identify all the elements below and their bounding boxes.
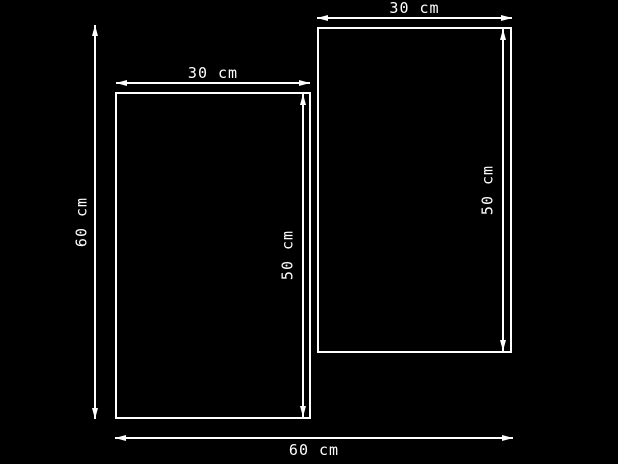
arrowhead-down-icon bbox=[92, 408, 98, 419]
dim-label-left-panel-height-text: 50 cm bbox=[281, 230, 296, 280]
dimension-line bbox=[94, 25, 96, 419]
dimension-line bbox=[302, 94, 304, 417]
arrowhead-up-icon bbox=[500, 29, 506, 40]
dim-label-overall-height-text: 60 cm bbox=[75, 197, 90, 247]
technical-drawing-canvas: 30 cm 30 cm 60 cm 50 cm 50 cm bbox=[0, 0, 618, 464]
dim-label-right-panel-height-text: 50 cm bbox=[481, 165, 496, 215]
arrowhead-down-icon bbox=[300, 406, 306, 417]
arrowhead-up-icon bbox=[92, 25, 98, 36]
dimension-line bbox=[116, 82, 310, 84]
dimension-line bbox=[317, 17, 512, 19]
arrowhead-left-icon bbox=[115, 435, 126, 441]
dim-label-overall-width: 60 cm bbox=[115, 443, 513, 458]
arrowhead-right-icon bbox=[502, 435, 513, 441]
arrowhead-down-icon bbox=[500, 340, 506, 351]
arrowhead-up-icon bbox=[300, 94, 306, 105]
dim-label-left-panel-width: 30 cm bbox=[115, 66, 311, 81]
dimension-line bbox=[502, 29, 504, 351]
dimension-line bbox=[115, 437, 513, 439]
dim-label-right-panel-width: 30 cm bbox=[317, 1, 512, 16]
